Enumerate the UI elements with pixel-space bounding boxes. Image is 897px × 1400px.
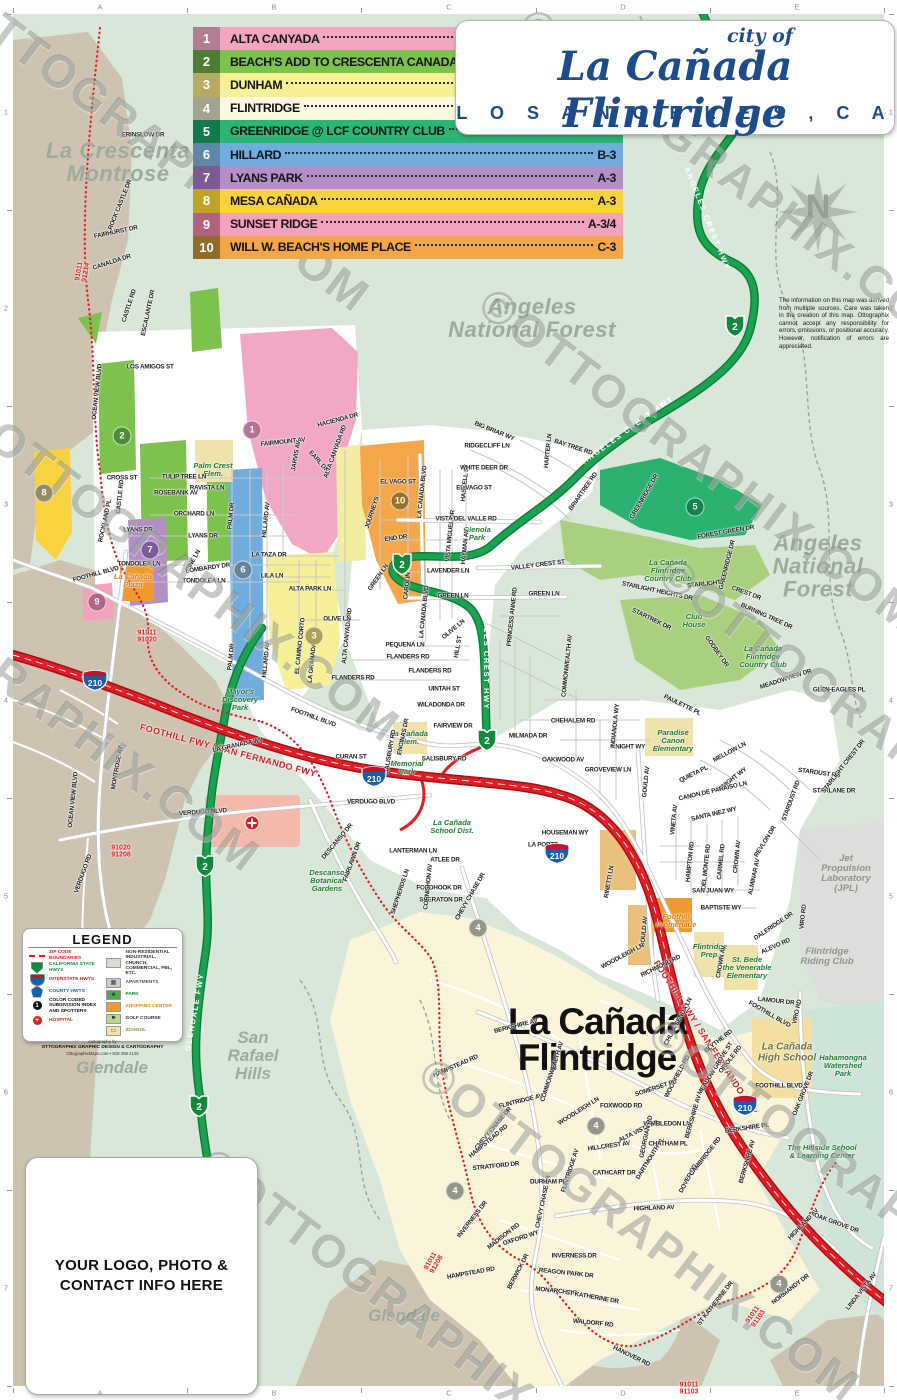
grid-tick: [7, 14, 12, 15]
credit-line-3: OttographixMaps.com • 818 398 2125: [28, 1051, 177, 1056]
index-row-number: 3: [193, 73, 220, 96]
grid-tick: [889, 1190, 894, 1191]
legend-item-label: SHOPPING CENTER: [126, 1004, 172, 1009]
legend-item: SHOPPING CENTER: [105, 1001, 178, 1012]
index-row-gridref: A-3: [597, 171, 616, 185]
grid-tick: [361, 8, 362, 13]
grid-letter: A: [97, 3, 102, 12]
spotter-icon: 1: [33, 1001, 42, 1010]
index-row-gridref: A-3/4: [588, 217, 616, 231]
title-box: city of La Cañada Flintridge L O S A N G…: [455, 20, 895, 135]
legend-title: LEGEND: [28, 932, 177, 948]
legend-item: ♣PARK: [105, 989, 178, 1000]
legend-item: COUNTY HWYS: [28, 986, 101, 997]
index-row-leader: [321, 221, 583, 223]
legend-item-label: INTERSTATE HWYS: [49, 977, 94, 982]
index-row-number: 4: [193, 97, 220, 120]
legend-item-icon: [28, 987, 46, 997]
logo-placeholder-text: YOUR LOGO, PHOTO & CONTACT INFO HERE: [55, 1256, 228, 1297]
index-row-name: DUNHAM: [230, 78, 282, 92]
hospital-icon: [245, 816, 259, 830]
legend-swatch: ♣: [106, 990, 121, 1000]
index-row-body: HILLARDB-3: [220, 143, 623, 166]
grid-letter: E: [794, 1389, 799, 1398]
grid-letter: C: [446, 1389, 451, 1398]
grid-letter: E: [794, 3, 799, 12]
legend-item: NON-RESIDENTIAL INDUSTRIAL, CHURCH, COMM…: [105, 950, 178, 976]
title-subtitle: L O S A N G E L E S , C A: [456, 103, 894, 124]
grid-tick: [889, 210, 894, 211]
legend-item-label: CALIFORNIA STATE HWYS: [49, 962, 101, 973]
grid-tick: [361, 1388, 362, 1393]
grid-number: 1: [889, 108, 893, 117]
legend-item: ▦APARTMENTS: [105, 977, 178, 988]
index-row-name: WILL W. BEACH'S HOME PLACE: [230, 240, 411, 254]
legend-item-label: NON-RESIDENTIAL INDUSTRIAL, CHURCH, COMM…: [126, 950, 178, 976]
legend-left-column: ZIP CODE BOUNDARIESCALIFORNIA STATE HWYS…: [28, 950, 101, 1037]
legend-item: ZIP CODE BOUNDARIES: [28, 950, 101, 961]
legend-swatch: ⚑: [106, 1014, 121, 1024]
legend-item-label: PARK: [126, 992, 139, 997]
index-row-leader: [321, 198, 593, 200]
grid-tick: [889, 14, 894, 15]
grid-tick: [884, 1388, 885, 1393]
legend-item-icon: ▭: [105, 1026, 123, 1036]
grid-number: 2: [4, 304, 8, 313]
legend-item-icon: [105, 958, 123, 968]
index-row-number: 10: [193, 236, 220, 259]
index-row-name: HILLARD: [230, 148, 281, 162]
legend-item-icon: ♣: [105, 990, 123, 1000]
grid-tick: [13, 8, 14, 13]
legend-item-icon: +: [28, 1015, 46, 1025]
compass-rose: N: [770, 164, 866, 260]
legend-item-icon: [105, 1002, 123, 1012]
grid-tick: [889, 1386, 894, 1387]
index-row-number: 8: [193, 189, 220, 212]
index-row-name: SUNSET RIDGE: [230, 217, 317, 231]
legend-item: ⚑GOLF COURSE: [105, 1013, 178, 1024]
grid-tick: [7, 1386, 12, 1387]
legend-box: LEGEND ZIP CODE BOUNDARIESCALIFORNIA STA…: [22, 928, 183, 1042]
legend-item: INTERSTATE HWYS: [28, 974, 101, 985]
index-row: 8MESA CAÑADAA-3: [193, 189, 623, 212]
index-row-leader: [285, 152, 593, 154]
grid-letter: D: [620, 1389, 625, 1398]
grid-tick: [536, 1388, 537, 1393]
grid-tick: [889, 994, 894, 995]
grid-letter: B: [271, 1389, 276, 1398]
legend-item-label: SCHOOL: [126, 1028, 147, 1033]
interstate-icon: [30, 974, 45, 986]
index-row-gridref: B-3: [597, 148, 616, 162]
legend-item: ▭SCHOOL: [105, 1025, 178, 1036]
index-row-leader: [307, 175, 594, 177]
legend-item-icon: 1: [28, 1001, 46, 1011]
index-row-name: ALTA CANYADA: [230, 32, 319, 46]
grid-letter: C: [446, 3, 451, 12]
grid-number: 2: [889, 304, 893, 313]
grid-tick: [7, 1190, 12, 1191]
grid-number: 5: [889, 892, 893, 901]
grid-number: 5: [4, 892, 8, 901]
legend-item-icon: ⚑: [105, 1014, 123, 1024]
legend-item-label: ZIP CODE BOUNDARIES: [49, 950, 101, 961]
grid-tick: [7, 994, 12, 995]
grid-number: 3: [889, 500, 893, 509]
grid-number: 6: [4, 1088, 8, 1097]
grid-tick: [7, 406, 12, 407]
zip-boundary-icon: [29, 955, 45, 957]
compass-north-letter: N: [806, 188, 831, 226]
index-row-name: FLINTRIDGE: [230, 101, 300, 115]
logo-placeholder-box: YOUR LOGO, PHOTO & CONTACT INFO HERE: [25, 1157, 258, 1395]
grid-letter: D: [620, 3, 625, 12]
index-row: 7LYANS PARKA-3: [193, 166, 623, 189]
legend-item-label: APARTMENTS: [126, 980, 159, 985]
county-hwy-icon: [31, 986, 43, 998]
legend-swatch: [106, 958, 121, 968]
index-row-body: MESA CAÑADAA-3: [220, 189, 623, 212]
state-hwy-icon: [31, 962, 43, 974]
legend-item-label: GOLF COURSE: [126, 1016, 161, 1021]
legend-item: CALIFORNIA STATE HWYS: [28, 962, 101, 973]
grid-tick: [187, 8, 188, 13]
index-row-number: 7: [193, 166, 220, 189]
grid-number: 3: [4, 500, 8, 509]
index-row: 6HILLARDB-3: [193, 143, 623, 166]
index-row: 9SUNSET RIDGEA-3/4: [193, 213, 623, 236]
index-row-leader: [415, 244, 594, 246]
legend-item-label: HOSPITAL: [49, 1018, 73, 1023]
grid-tick: [710, 1388, 711, 1393]
legend-item-icon: [28, 975, 46, 985]
index-row-gridref: A-3: [597, 194, 616, 208]
hospital-icon: +: [33, 1016, 42, 1025]
disclaimer-text: The information on this map was derived …: [779, 297, 889, 350]
index-row: 10WILL W. BEACH'S HOME PLACEC-3: [193, 236, 623, 259]
grid-tick: [13, 1388, 14, 1393]
index-row-number: 1: [193, 27, 220, 50]
legend-item: 1COLOR CODED SUBDIVISION INDEX AND SPOTT…: [28, 998, 101, 1014]
index-row-body: SUNSET RIDGEA-3/4: [220, 213, 623, 236]
credit-line-2: OTTOGRAPHIX GRAPHIC DESIGN & CARTOGRAPHY: [28, 1045, 177, 1051]
index-row-name: MESA CAÑADA: [230, 194, 317, 208]
map-poster: N The information on this map was derive…: [0, 0, 897, 1400]
grid-tick: [7, 602, 12, 603]
grid-tick: [7, 210, 12, 211]
legend-item-icon: [28, 963, 46, 973]
index-row-name: BEACH'S ADD TO CRESCENTA CANADA: [230, 55, 458, 69]
grid-tick: [884, 8, 885, 13]
index-row-number: 6: [193, 143, 220, 166]
jpl-area: [800, 820, 897, 1010]
grid-tick: [889, 602, 894, 603]
index-row-number: 2: [193, 50, 220, 73]
index-row-gridref: C-3: [597, 240, 616, 254]
index-row-body: LYANS PARKA-3: [220, 166, 623, 189]
grid-tick: [710, 8, 711, 13]
grid-number: 7: [889, 1284, 893, 1293]
grid-letter: B: [271, 3, 276, 12]
legend-item: +HOSPITAL: [28, 1015, 101, 1026]
grid-tick: [7, 798, 12, 799]
index-row-number: 9: [193, 213, 220, 236]
grid-tick: [889, 406, 894, 407]
legend-item-label: COUNTY HWYS: [49, 989, 85, 994]
legend-swatch: ▭: [106, 1026, 121, 1036]
legend-swatch: [106, 1002, 121, 1012]
legend-right-column: NON-RESIDENTIAL INDUSTRIAL, CHURCH, COMM…: [105, 950, 178, 1037]
grid-number: 1: [4, 108, 8, 117]
legend-item-icon: ▦: [105, 978, 123, 988]
grid-number: 4: [4, 696, 8, 705]
index-row-number: 5: [193, 120, 220, 143]
legend-item-icon: [28, 951, 46, 961]
grid-number: 7: [4, 1284, 8, 1293]
grid-letter: A: [97, 1389, 102, 1398]
grid-number: 6: [889, 1088, 893, 1097]
legend-item-label: COLOR CODED SUBDIVISION INDEX AND SPOTTE…: [49, 998, 101, 1014]
grid-tick: [536, 8, 537, 13]
grid-tick: [187, 1388, 188, 1393]
grid-number: 4: [889, 696, 893, 705]
legend-swatch: ▦: [106, 978, 121, 988]
grid-tick: [889, 798, 894, 799]
index-row-name: LYANS PARK: [230, 171, 303, 185]
legend-credit: cartography by OTTOGRAPHIX GRAPHIC DESIG…: [28, 1039, 177, 1056]
index-row-body: WILL W. BEACH'S HOME PLACEC-3: [220, 236, 623, 259]
index-row-name: GREENRIDGE @ LCF COUNTRY CLUB: [230, 124, 445, 138]
